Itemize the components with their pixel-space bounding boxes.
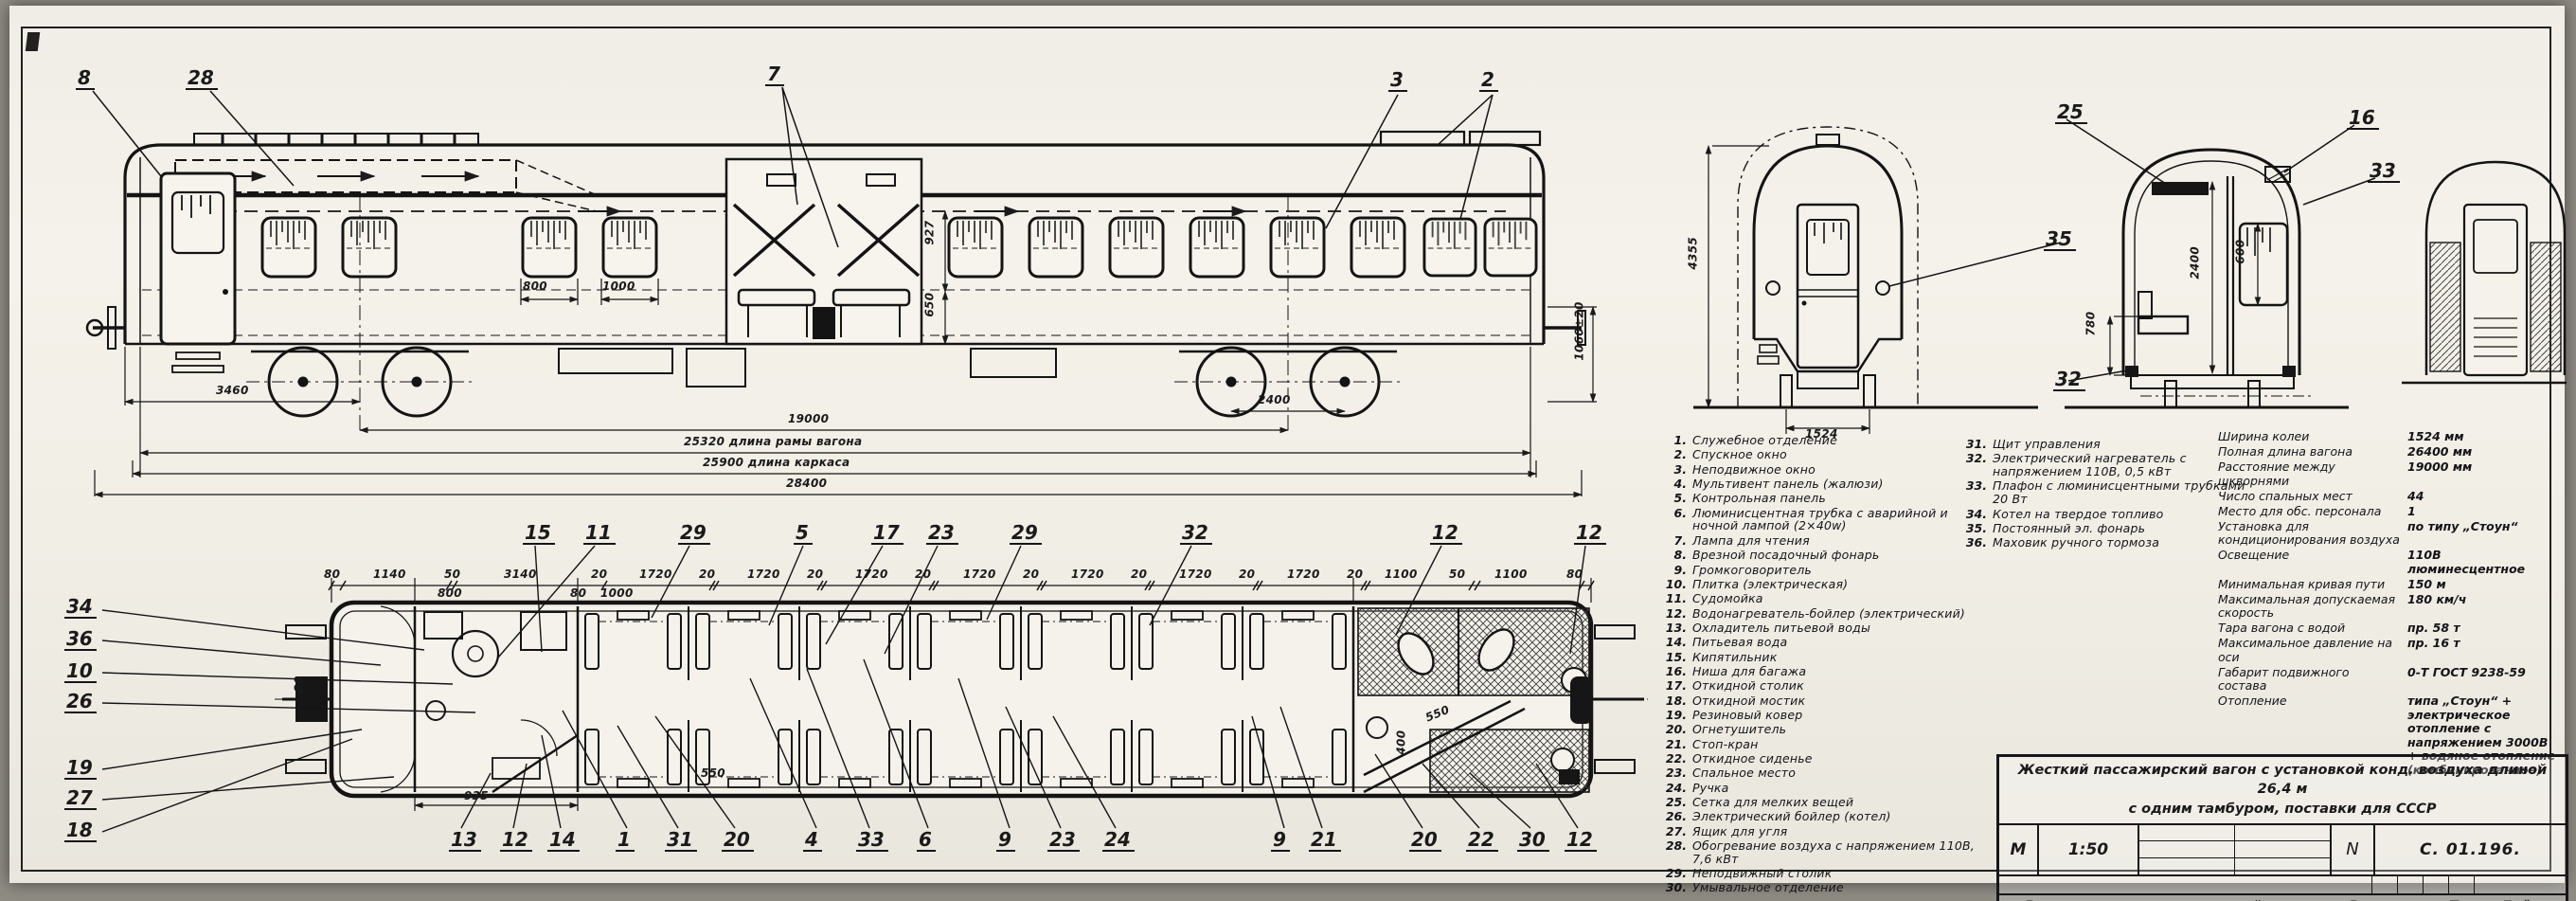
legend-item-text: Обогревание воздуха с напряжением 110В, … <box>1692 839 1989 866</box>
legend-item-number: 32. <box>1962 452 1987 478</box>
legend-item: 28. Обогревание воздуха с напряжением 11… <box>1662 839 1989 866</box>
legend-item-text: Мультивент панель (жалюзи) <box>1692 478 1884 491</box>
legend-item-text: Кипятильник <box>1692 651 1778 664</box>
drawing-title-line1: Жесткий пассажирский вагон с установкой … <box>2005 761 2560 800</box>
legend-item-number: 27. <box>1662 825 1687 838</box>
title-block-middle-row: М 1:50 N С. 01.196. <box>1999 825 2566 876</box>
legend-item: 8. Врезной посадочный фонарь <box>1662 549 1989 562</box>
revision-cell <box>2235 841 2331 857</box>
legend-item-number: 23. <box>1662 766 1687 780</box>
revision-cell <box>2139 858 2235 874</box>
legend-item: 2. Спускное окно <box>1662 448 1989 461</box>
legend-item-text: Люминисцентная трубка с аварийной и ночн… <box>1692 507 1989 533</box>
legend-item: 35. Постоянный эл. фонарь <box>1962 522 2246 535</box>
legend-item: 26. Электрический бойлер (котел) <box>1662 810 1989 823</box>
legend-item: 6. Люминисцентная трубка с аварийной и н… <box>1662 507 1989 533</box>
legend-item-text: Неподвижный столик <box>1692 867 1833 880</box>
spec-row: Максимальная допускаемая скорость 180 км… <box>2218 593 2557 621</box>
legend-item-number: 11. <box>1662 592 1687 605</box>
legend-item-number: 36. <box>1962 536 1987 550</box>
legend-item-text: Спускное окно <box>1692 448 1787 461</box>
drawing-number: С. 01.196. <box>2375 825 2566 874</box>
number-label: N <box>2332 825 2375 874</box>
legend-item: 24. Ручка <box>1662 782 1989 795</box>
legend-item-number: 5. <box>1662 492 1687 505</box>
legend-item-text: Постоянный эл. фонарь <box>1993 522 2145 535</box>
factory-name: Вагоно-машиностроительный завод им. Виль… <box>1999 895 2566 901</box>
spec-label: Минимальная кривая пути <box>2218 578 2407 592</box>
legend-item-text: Умывальное отделение <box>1692 881 1844 894</box>
strip-cell <box>2448 876 2474 893</box>
spec-value: 1524 мм <box>2407 430 2557 444</box>
spec-value: 19000 мм <box>2407 460 2557 488</box>
legend-item-number: 26. <box>1662 810 1687 823</box>
legend-item: 4. Мультивент панель (жалюзи) <box>1662 478 1989 491</box>
legend-item-text: Водонагреватель-бойлер (электрический) <box>1692 607 1965 621</box>
legend-item-number: 14. <box>1662 636 1687 649</box>
legend-item: 27. Ящик для угля <box>1662 825 1989 838</box>
strip-cell <box>2397 876 2423 893</box>
spec-label: Максимальная допускаемая скорость <box>2218 593 2407 621</box>
strip-cell <box>2423 876 2448 893</box>
scale-label: М <box>1999 825 2039 874</box>
legend-item: 34. Котел на твердое топливо <box>1962 508 2246 521</box>
side-elevation-view: 828732 8001000927650346024001900025320 д… <box>66 53 1619 498</box>
spec-value: 110В люминесцентное <box>2407 549 2557 576</box>
floor-plan-view: 1511295172329321212 34361026192718 13121… <box>47 491 1657 870</box>
spec-value: пр. 16 т <box>2407 637 2557 664</box>
legend-item-text: Плитка (электрическая) <box>1692 578 1848 591</box>
revision-cell <box>2235 825 2331 841</box>
spec-label: Расстояние между шкворнями <box>2218 460 2407 488</box>
legend-item-text: Ручка <box>1692 782 1729 795</box>
legend-item-number: 21. <box>1662 738 1687 751</box>
legend-item: 20. Огнетушитель <box>1662 723 1989 736</box>
spec-label: Освещение <box>2218 549 2407 576</box>
legend-item-text: Громкоговоритель <box>1692 564 1812 577</box>
strip-cell <box>2371 876 2397 893</box>
strip-filler <box>1999 876 2371 893</box>
title-block: Жесткий пассажирский вагон с установкой … <box>1996 754 2568 901</box>
legend-item-text: Откидной мостик <box>1692 694 1805 708</box>
spec-row: Освещение 110В люминесцентное <box>2218 549 2557 576</box>
spec-row: Полная длина вагона 26400 мм <box>2218 445 2557 460</box>
legend-item-number: 4. <box>1662 478 1687 491</box>
spec-row: Место для обс. персонала 1 <box>2218 505 2557 519</box>
legend-item: 31. Щит управления <box>1962 438 2246 451</box>
spec-row: Габарит подвижного состава 0-Т ГОСТ 9238… <box>2218 666 2557 694</box>
spec-value: 1 <box>2407 505 2557 519</box>
legend-item: 11. Судомойка <box>1662 592 1989 605</box>
legend-item-text: Огнетушитель <box>1692 723 1786 736</box>
legend-item-text: Плафон с люминисцентными трубками 20 Вт <box>1993 479 2246 506</box>
legend-item: 17. Откидной столик <box>1662 679 1989 693</box>
legend-item-number: 35. <box>1962 522 1987 535</box>
legend-item: 23. Спальное место <box>1662 766 1989 780</box>
legend-item: 30. Умывальное отделение <box>1662 881 1989 894</box>
drawing-title-line2: с одним тамбуром, поставки для СССР <box>2005 800 2560 819</box>
spec-value: 150 м <box>2407 578 2557 592</box>
legend-item-text: Маховик ручного тормоза <box>1993 536 2159 550</box>
legend-item-number: 34. <box>1962 508 1987 521</box>
spec-value: 180 км/ч <box>2407 593 2557 621</box>
legend-item-number: 6. <box>1662 507 1687 533</box>
legend-item-text: Сетка для мелких вещей <box>1692 796 1853 809</box>
legend-item: 18. Откидной мостик <box>1662 694 1989 708</box>
spec-label: Тара вагона с водой <box>2218 622 2407 636</box>
legend-item-number: 24. <box>1662 782 1687 795</box>
legend-item-text: Служебное отделение <box>1692 434 1837 447</box>
legend-item-text: Судомойка <box>1692 592 1763 605</box>
legend-item-number: 19. <box>1662 709 1687 722</box>
spec-value: 44 <box>2407 490 2557 504</box>
legend-item: 7. Лампа для чтения <box>1662 534 1989 548</box>
legend-item-number: 7. <box>1662 534 1687 548</box>
parts-legend-column-1: 1. Служебное отделение 2. Спускное окно … <box>1662 434 1989 896</box>
legend-item-number: 8. <box>1662 549 1687 562</box>
legend-item: 22. Откидное сиденье <box>1662 752 1989 766</box>
drawing-title: Жесткий пассажирский вагон с установкой … <box>1999 757 2566 825</box>
scanned-blueprint-sheet: 828732 8001000927650346024001900025320 д… <box>0 0 2576 901</box>
spec-label: Ширина колеи <box>2218 430 2407 444</box>
legend-item: 25. Сетка для мелких вещей <box>1662 796 1989 809</box>
legend-item-text: Врезной посадочный фонарь <box>1692 549 1879 562</box>
legend-item-number: 18. <box>1662 694 1687 708</box>
legend-item: 29. Неподвижный столик <box>1662 867 1989 880</box>
side-elevation-drawing <box>66 53 1619 498</box>
legend-item-number: 17. <box>1662 679 1687 693</box>
spec-value: по типу „Стоун“ <box>2407 520 2557 548</box>
legend-item: 36. Маховик ручного тормоза <box>1962 536 2246 550</box>
strip-filler <box>2499 876 2566 893</box>
legend-item-text: Спальное место <box>1692 766 1796 780</box>
legend-item-text: Питьевая вода <box>1692 636 1787 649</box>
spec-row: Число спальных мест 44 <box>2218 490 2557 504</box>
strip-cell <box>2474 876 2499 893</box>
legend-item-text: Ящик для угля <box>1692 825 1787 838</box>
legend-item-text: Ниша для багажа <box>1692 665 1806 678</box>
legend-item: 3. Неподвижное окно <box>1662 463 1989 477</box>
parts-legend-column-2: 31. Щит управления 32. Электрический наг… <box>1962 438 2246 551</box>
spec-row: Минимальная кривая пути 150 м <box>2218 578 2557 592</box>
revision-grid <box>2139 825 2332 874</box>
legend-item-text: Щит управления <box>1993 438 2101 451</box>
spec-row: Ширина колеи 1524 мм <box>2218 430 2557 444</box>
spec-row: Тара вагона с водой пр. 58 т <box>2218 622 2557 636</box>
paper: 828732 8001000927650346024001900025320 д… <box>9 6 2565 883</box>
end-views: 2516333532 435515247802400600 <box>1686 91 2567 451</box>
legend-item: 32. Электрический нагреватель с напряжен… <box>1962 452 2246 478</box>
legend-item-number: 13. <box>1662 622 1687 635</box>
spec-value: 0-Т ГОСТ 9238-59 <box>2407 666 2557 694</box>
revision-cell <box>2139 841 2235 857</box>
legend-item-text: Охладитель питьевой воды <box>1692 622 1870 635</box>
legend-item-number: 29. <box>1662 867 1687 880</box>
technical-specs: Ширина колеи 1524 мм Полная длина вагона… <box>2218 430 2557 779</box>
legend-item-text: Стоп-кран <box>1692 738 1758 751</box>
legend-item-number: 9. <box>1662 564 1687 577</box>
legend-item-number: 2. <box>1662 448 1687 461</box>
scale-value: 1:50 <box>2039 825 2139 874</box>
legend-item-text: Откидной столик <box>1692 679 1804 693</box>
legend-item: 14. Питьевая вода <box>1662 636 1989 649</box>
legend-item-number: 12. <box>1662 607 1687 621</box>
legend-item-text: Неподвижное окно <box>1692 463 1816 477</box>
legend-item: 5. Контрольная панель <box>1662 492 1989 505</box>
legend-item: 33. Плафон с люминисцентными трубками 20… <box>1962 479 2246 506</box>
spec-value: 26400 мм <box>2407 445 2557 460</box>
spec-label: Максимальное давление на оси <box>2218 637 2407 664</box>
legend-item: 13. Охладитель питьевой воды <box>1662 622 1989 635</box>
legend-item: 1. Служебное отделение <box>1662 434 1989 447</box>
legend-item-number: 3. <box>1662 463 1687 477</box>
spec-row: Максимальное давление на оси пр. 16 т <box>2218 637 2557 664</box>
legend-item-number: 15. <box>1662 651 1687 664</box>
legend-item-text: Контрольная панель <box>1692 492 1826 505</box>
revision-cell <box>2235 858 2331 874</box>
legend-item-text: Электрический бойлер (котел) <box>1692 810 1891 823</box>
legend-item: 21. Стоп-кран <box>1662 738 1989 751</box>
legend-item-text: Резиновый ковер <box>1692 709 1802 722</box>
spec-label: Место для обс. персонала <box>2218 505 2407 519</box>
legend-item-text: Котел на твердое топливо <box>1993 508 2164 521</box>
legend-item-text: Лампа для чтения <box>1692 534 1810 548</box>
spec-label: Полная длина вагона <box>2218 445 2407 460</box>
legend-item-text: Откидное сиденье <box>1692 752 1813 766</box>
end-views-drawing <box>1686 91 2567 451</box>
legend-item-number: 30. <box>1662 881 1687 894</box>
spec-label: Число спальных мест <box>2218 490 2407 504</box>
spec-row: Расстояние между шкворнями 19000 мм <box>2218 460 2557 488</box>
legend-item-number: 16. <box>1662 665 1687 678</box>
legend-item-number: 1. <box>1662 434 1687 447</box>
legend-item-number: 31. <box>1962 438 1987 451</box>
floor-plan-drawing <box>47 491 1657 870</box>
legend-item-number: 28. <box>1662 839 1687 866</box>
legend-item: 10. Плитка (электрическая) <box>1662 578 1989 591</box>
legend-item-number: 33. <box>1962 479 1987 506</box>
spec-label: Установка для кондиционирования воздуха <box>2218 520 2407 548</box>
legend-item-number: 22. <box>1662 752 1687 766</box>
legend-item: 15. Кипятильник <box>1662 651 1989 664</box>
legend-item-number: 25. <box>1662 796 1687 809</box>
spec-label: Габарит подвижного состава <box>2218 666 2407 694</box>
scan-artifact <box>26 32 40 51</box>
spec-row: Установка для кондиционирования воздуха … <box>2218 520 2557 548</box>
legend-item: 19. Резиновый ковер <box>1662 709 1989 722</box>
legend-item-number: 10. <box>1662 578 1687 591</box>
legend-item: 12. Водонагреватель-бойлер (электрически… <box>1662 607 1989 621</box>
revision-cell <box>2139 825 2235 841</box>
legend-item: 16. Ниша для багажа <box>1662 665 1989 678</box>
legend-item-text: Электрический нагреватель с напряжением … <box>1993 452 2246 478</box>
spec-value: пр. 58 т <box>2407 622 2557 636</box>
legend-item: 9. Громкоговоритель <box>1662 564 1989 577</box>
title-block-strip <box>1999 876 2566 895</box>
legend-item-number: 20. <box>1662 723 1687 736</box>
